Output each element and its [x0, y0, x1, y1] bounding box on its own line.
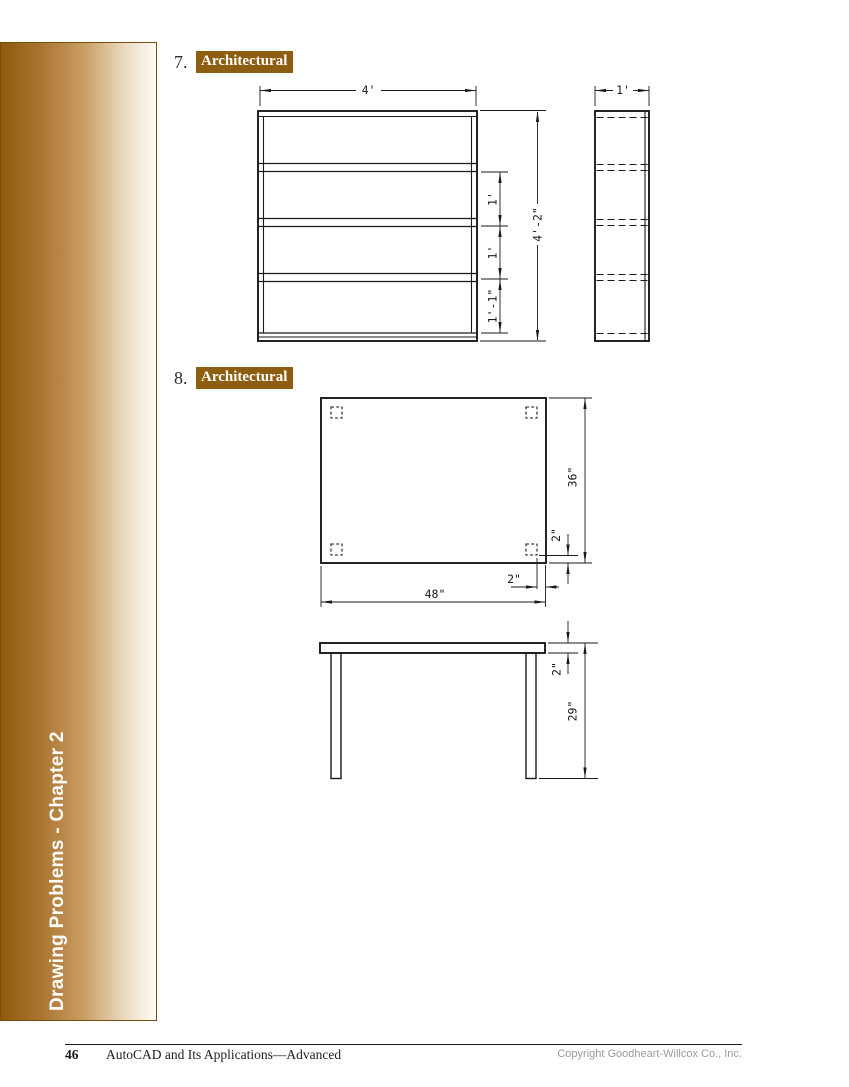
footer-copyright: Copyright Goodheart-Willcox Co., Inc. [557, 1048, 742, 1060]
sidebar-chapter-label: Drawing Problems - Chapter 2 [47, 731, 69, 1011]
chapter-sidebar [0, 42, 157, 1021]
footer-rule [65, 1044, 742, 1045]
dim-text-shelf-space-upper: 1' [486, 192, 500, 206]
dimension-shelf-spacing: 1' 1' 1'-1" [481, 172, 508, 333]
dim-text-overall-height: 4'-2" [531, 207, 545, 242]
dim-text-front-width: 4' [362, 83, 376, 97]
bookshelf-front-view [258, 111, 477, 341]
table-front-view [320, 643, 545, 779]
problem-8-drawing: 36" 2" 2" 48" [300, 390, 610, 790]
dim-text-side-width: 1' [616, 83, 630, 97]
footer-book-title: AutoCAD and Its Applications—Advanced [106, 1047, 341, 1063]
dimension-front-width: 4' [260, 83, 476, 106]
dim-text-leg-inset-bottom: 2" [549, 528, 563, 542]
dim-text-top-thickness: 2" [550, 662, 564, 676]
dim-text-top-depth: 36" [566, 467, 580, 488]
table-top-view [321, 398, 546, 563]
dim-text-shelf-space-middle: 1' [486, 246, 500, 260]
dim-text-shelf-space-lower: 1'-1" [486, 289, 500, 324]
dim-text-leg-inset-right: 2" [507, 572, 521, 586]
dim-text-top-width: 48" [425, 587, 446, 601]
dimension-top-thickness: 2" [548, 621, 598, 676]
dimension-leg-inset-right: 2" [507, 558, 559, 607]
footer-page-number: 46 [65, 1047, 79, 1063]
dimension-side-width: 1' [595, 83, 649, 106]
dim-text-table-height: 29" [566, 701, 580, 722]
textbook-page: Drawing Problems - Chapter 2 7. Architec… [0, 0, 849, 1087]
bookshelf-side-view [595, 111, 649, 341]
problem-8-category-label: Architectural [196, 367, 293, 389]
dimension-leg-inset-bottom: 2" [539, 528, 578, 584]
problem-7-drawing: 4' 4'-2" 1' 1' 1'-1" [250, 70, 660, 355]
problem-8-number: 8. [174, 368, 188, 389]
problem-7-number: 7. [174, 52, 188, 73]
